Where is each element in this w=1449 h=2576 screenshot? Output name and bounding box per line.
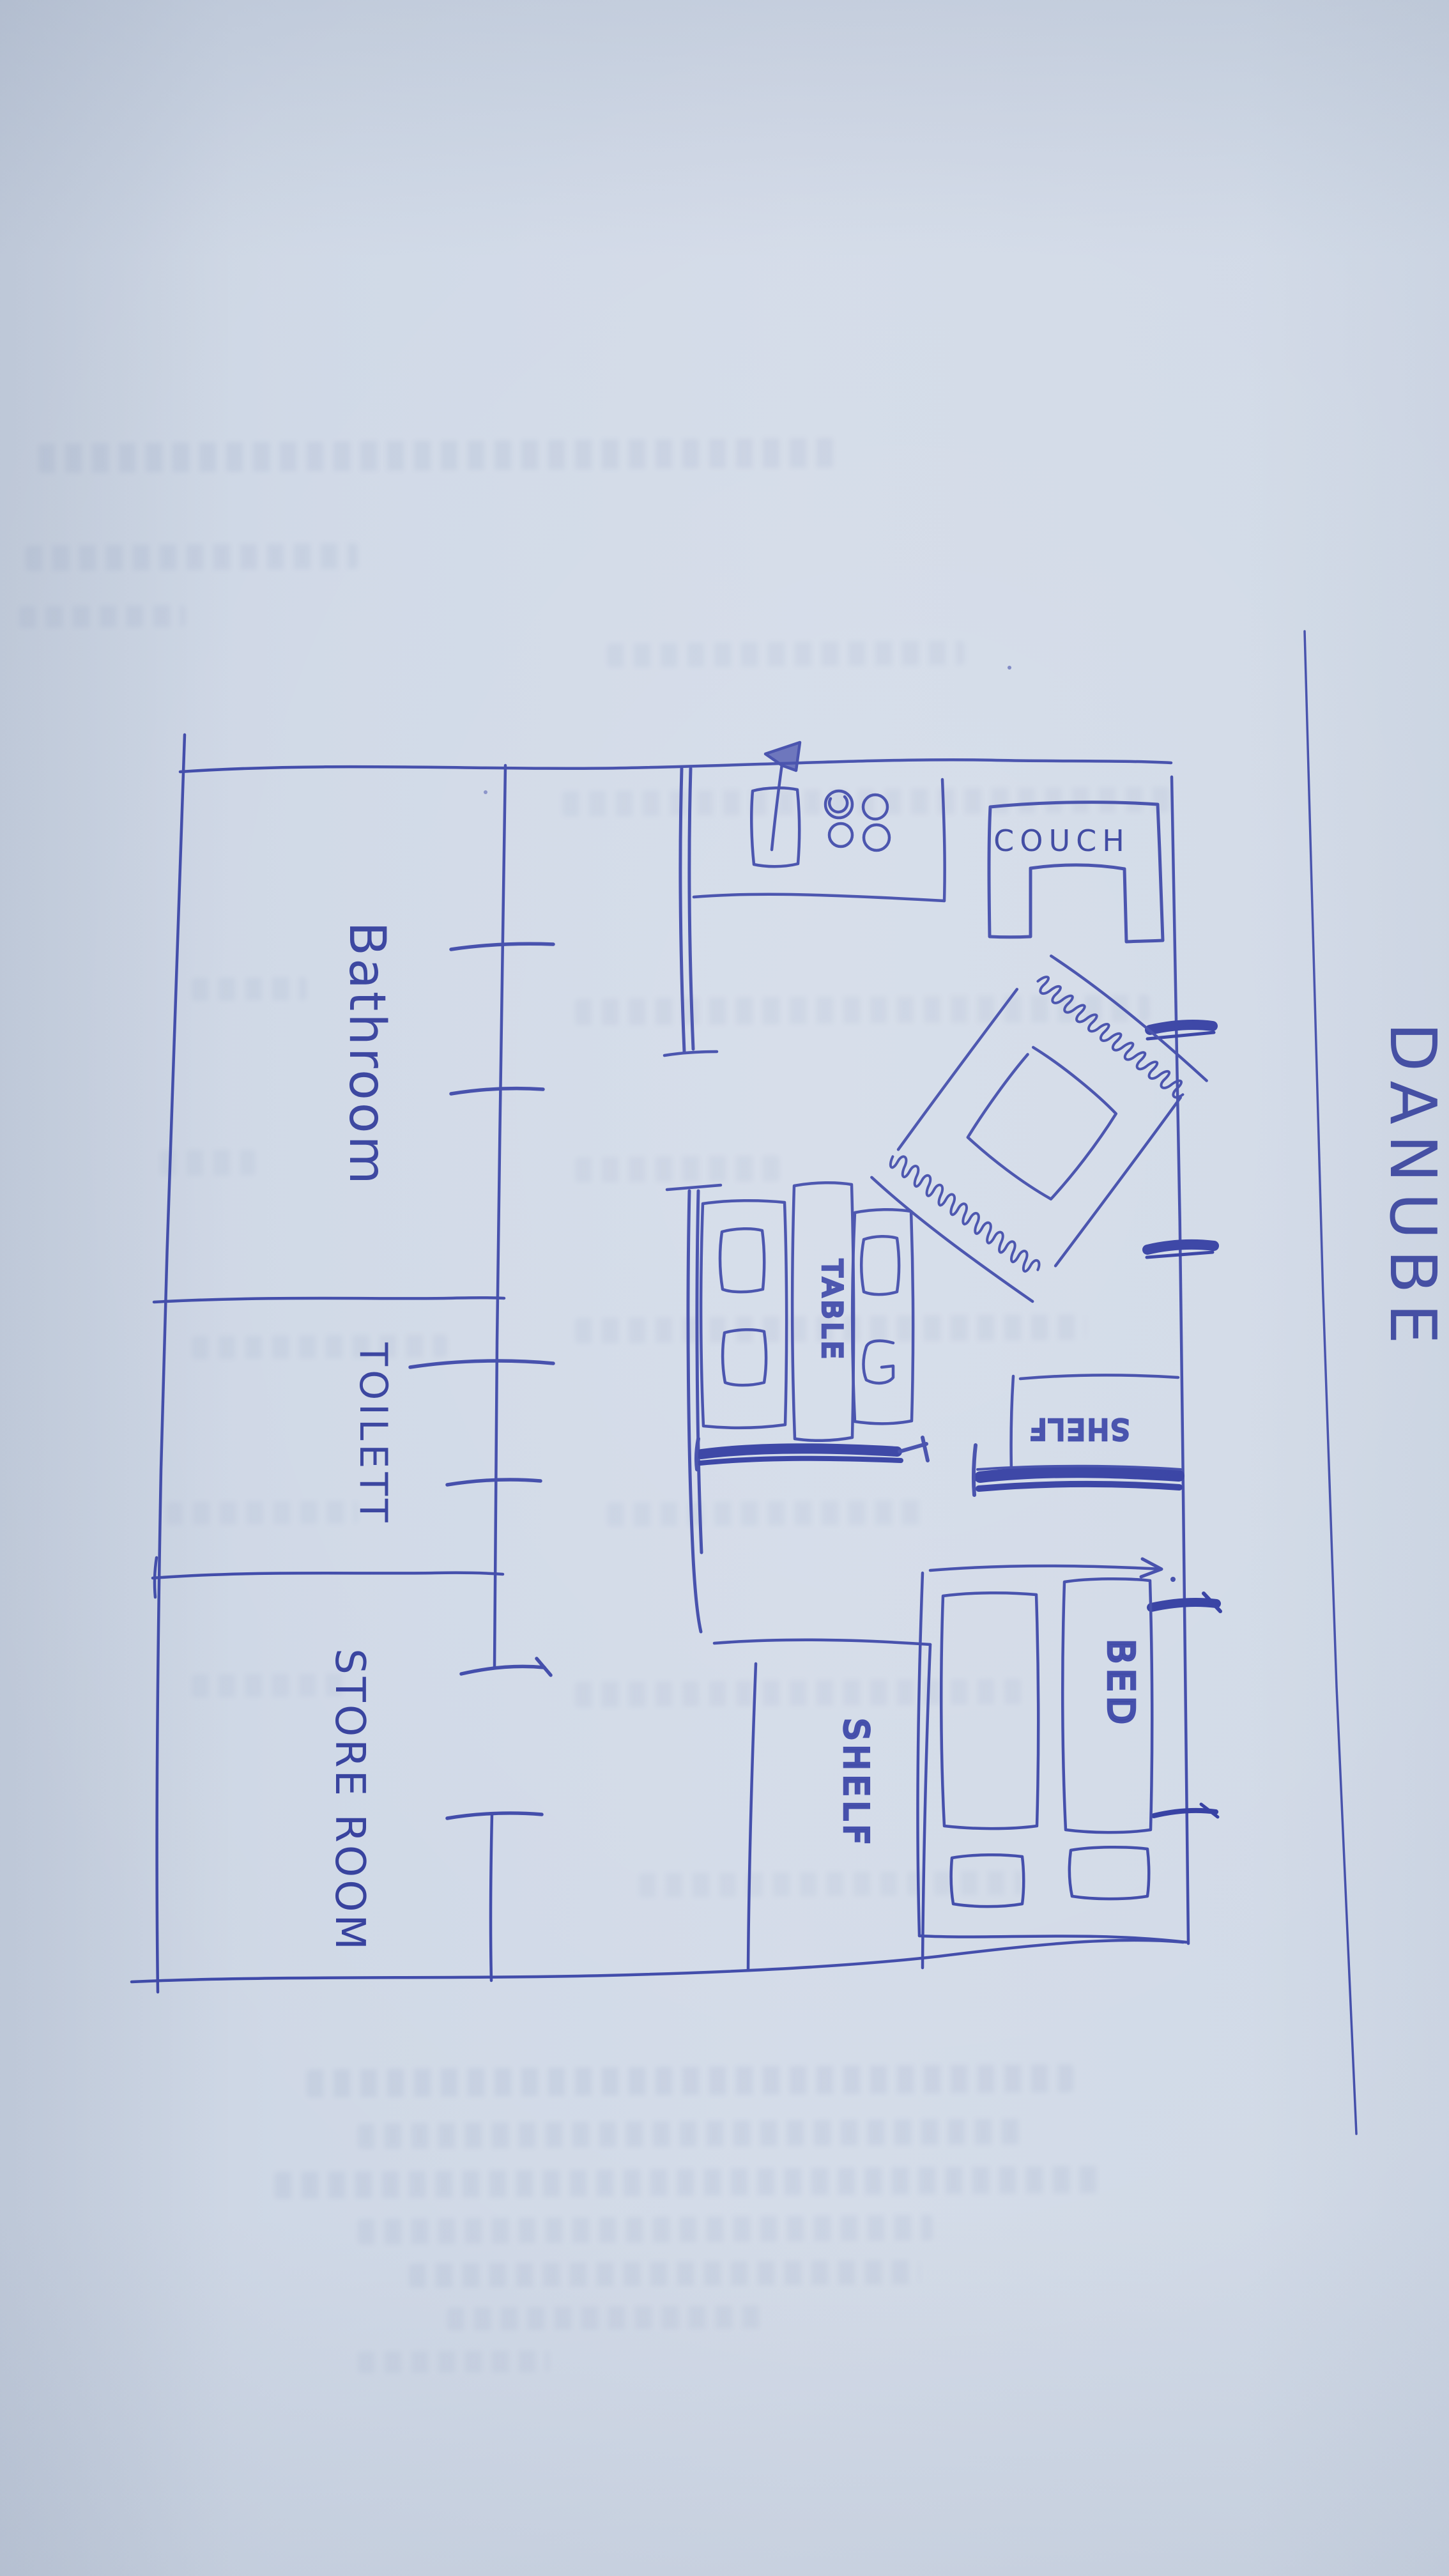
margin-ruler-line xyxy=(1305,631,1356,2134)
bed-label: BED xyxy=(1100,1639,1141,1729)
rug-fringe-base xyxy=(1050,954,1210,1081)
stove-burner-inner xyxy=(829,797,847,812)
shelf-right-bar-over xyxy=(979,1484,1179,1489)
wall-kitchen-top-tick xyxy=(667,1185,721,1190)
tick xyxy=(447,1813,542,1818)
pen-speck xyxy=(484,790,487,794)
couch: COUCH xyxy=(989,802,1163,942)
bathroom-label: Bathroom xyxy=(338,921,395,1186)
pillow xyxy=(1069,1847,1149,1899)
counter-bottom xyxy=(694,894,944,901)
chair-panel-left xyxy=(701,1200,786,1428)
shelf-right-side xyxy=(1011,1376,1013,1471)
faucet-flag-icon xyxy=(765,742,800,770)
floor-plan-sketch: COUCH TABLE xyxy=(0,0,1449,2576)
danube-label: DANUBE xyxy=(1376,1022,1449,1354)
wall-kitchen-a2 xyxy=(689,769,693,1049)
shelf-right: SHELF xyxy=(974,1376,1181,1496)
pillow xyxy=(951,1855,1024,1906)
bench-tick xyxy=(696,1439,698,1469)
tick xyxy=(451,1089,543,1094)
shelf-bottom-label: SHELF xyxy=(836,1719,875,1849)
door-tick xyxy=(1150,1025,1213,1030)
tick xyxy=(410,1361,553,1367)
bed-box-left xyxy=(918,1573,923,1936)
tick xyxy=(461,1666,544,1674)
shelf-bottom-top xyxy=(714,1640,930,1644)
wall-left xyxy=(157,735,185,1992)
counter-right xyxy=(942,779,945,901)
shelf-bottom-right xyxy=(923,1644,930,1968)
stove-burner xyxy=(863,795,887,819)
wall-bathroom-toilet xyxy=(154,1298,504,1302)
door-tick xyxy=(1151,1602,1216,1607)
shelf-right-top xyxy=(1020,1376,1178,1379)
tick xyxy=(447,1480,540,1485)
wall-kitchen-a xyxy=(680,769,684,1052)
bench-bar xyxy=(701,1448,897,1454)
divider-ticks xyxy=(410,944,553,1818)
chair xyxy=(861,1236,899,1294)
wall-kitchen-foot-tick xyxy=(664,1052,717,1055)
pen-speck xyxy=(1008,666,1011,670)
dining-set: TABLE xyxy=(696,1183,928,1469)
wall-divider-left-column xyxy=(494,765,505,1667)
stove-burner xyxy=(829,824,852,847)
bed-area: BED xyxy=(918,1559,1186,1942)
wall-toilet-store xyxy=(153,1573,503,1578)
shelf-right-label: SHELF xyxy=(1028,1413,1130,1445)
wall-bottom xyxy=(132,1940,1183,1982)
photographed-paper: COUCH TABLE xyxy=(0,0,1449,2576)
store-room-label: STORE ROOM xyxy=(326,1648,373,1952)
pen-speck xyxy=(1170,1577,1176,1582)
couch-label: COUCH xyxy=(993,824,1130,858)
shelf-bottom: SHELF xyxy=(714,1640,930,1969)
faucet-pole xyxy=(772,764,782,850)
shelf-right-bar xyxy=(980,1472,1179,1477)
chair-panel-right xyxy=(852,1209,913,1423)
shelf-right-tick xyxy=(974,1445,976,1495)
chair xyxy=(720,1229,764,1292)
chair xyxy=(864,1341,894,1383)
shelf-bottom-left xyxy=(748,1664,756,1969)
door-tick xyxy=(1154,1811,1216,1816)
wall-divider-left-column-lower xyxy=(491,1814,492,1981)
bench-bar-over xyxy=(700,1459,901,1463)
wall-right xyxy=(1172,777,1188,1943)
bench-arrow xyxy=(900,1437,928,1460)
mattress xyxy=(941,1593,1038,1828)
rug-inner-square xyxy=(963,1045,1121,1204)
chair xyxy=(723,1330,766,1385)
toilet-label: TOILETT xyxy=(351,1342,395,1526)
bed-nook-line xyxy=(930,1566,1161,1570)
wall-top xyxy=(180,760,1171,772)
stove-burner xyxy=(864,825,889,850)
door-tick xyxy=(1147,1245,1214,1250)
table-label: TABLE xyxy=(816,1259,848,1362)
rug-side xyxy=(1052,1098,1184,1266)
rug-side xyxy=(894,989,1021,1149)
